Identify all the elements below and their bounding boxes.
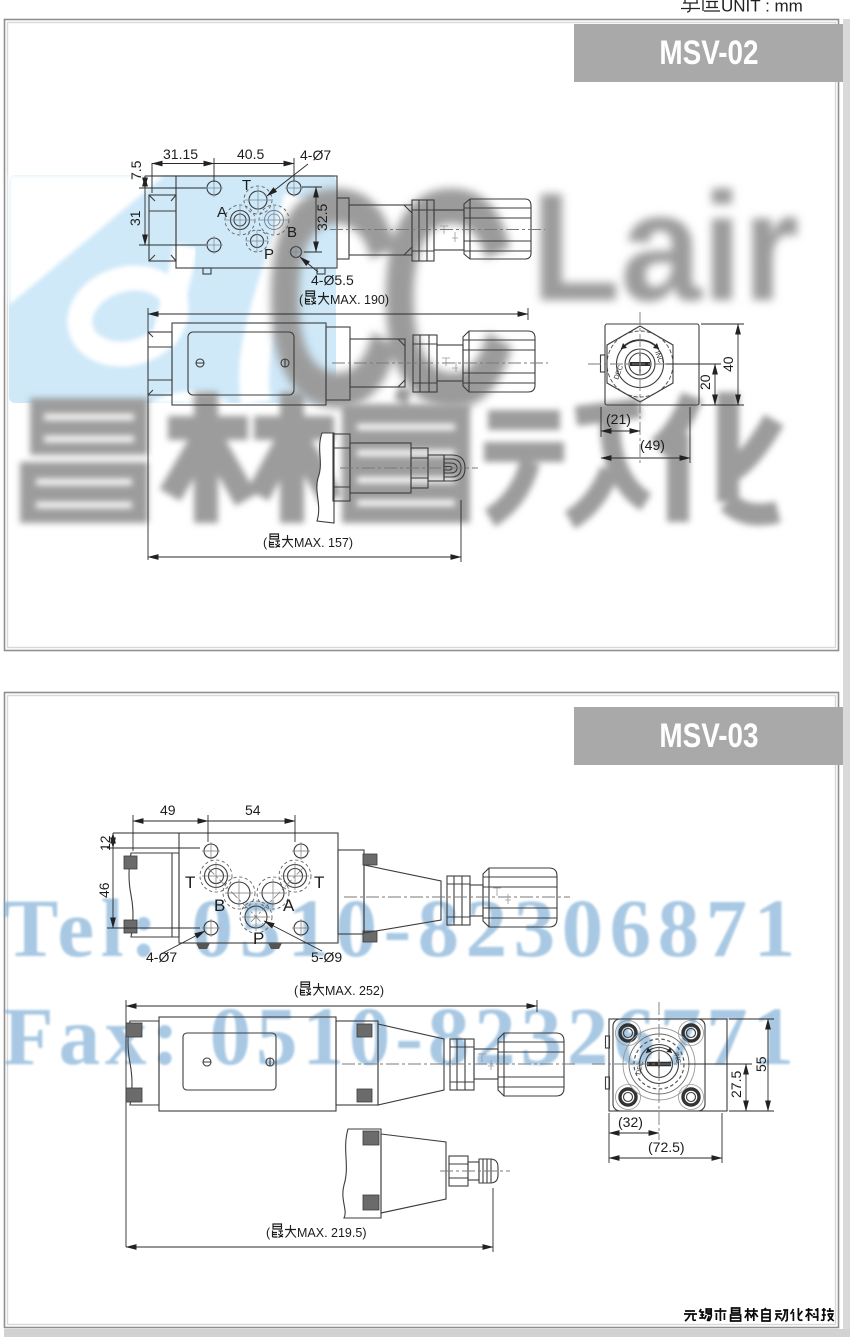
svg-text:A: A [217, 204, 227, 221]
svg-text:B: B [214, 896, 225, 915]
svg-text:(: ( [266, 1226, 271, 1240]
svg-text:MAX. 157): MAX. 157) [294, 536, 353, 550]
svg-text:4-Ø5.5: 4-Ø5.5 [311, 272, 354, 288]
svg-text:5-Ø9: 5-Ø9 [311, 949, 342, 965]
svg-text:DEC: DEC [613, 364, 625, 380]
svg-text:MAX. 219.5): MAX. 219.5) [297, 1226, 366, 1240]
svg-text:(72.5): (72.5) [648, 1139, 685, 1155]
svg-text:MSV-02: MSV-02 [659, 33, 758, 71]
svg-text:UNIT : mm: UNIT : mm [721, 0, 803, 16]
svg-text:31.15: 31.15 [163, 146, 198, 162]
svg-text:T: T [242, 177, 251, 194]
svg-text:46: 46 [96, 882, 112, 898]
svg-text:12: 12 [97, 835, 113, 851]
svg-text:55: 55 [753, 1056, 769, 1072]
svg-text:P: P [253, 929, 264, 948]
svg-text:(49): (49) [640, 437, 665, 453]
svg-text:MSV-03: MSV-03 [659, 716, 758, 754]
svg-text:(: ( [263, 536, 268, 550]
svg-text:A: A [283, 896, 295, 915]
svg-text:40.5: 40.5 [237, 146, 264, 162]
svg-text:54: 54 [245, 802, 261, 818]
svg-text:MAX. 252): MAX. 252) [325, 984, 384, 998]
svg-text:Fax: 0510-82326771: Fax: 0510-82326771 [3, 990, 799, 1082]
svg-text:4-Ø7: 4-Ø7 [146, 949, 177, 965]
svg-text:MAX. 190): MAX. 190) [330, 293, 389, 307]
svg-text:49: 49 [160, 802, 176, 818]
svg-text:Lair: Lair [531, 161, 799, 333]
svg-text:31: 31 [127, 210, 143, 226]
svg-text:B: B [287, 224, 297, 241]
svg-text:20: 20 [697, 374, 713, 390]
svg-text:4-Ø7: 4-Ø7 [300, 147, 331, 163]
svg-text:P: P [264, 246, 274, 263]
svg-text:T: T [185, 873, 195, 892]
svg-text:T: T [314, 873, 324, 892]
svg-text:7.5: 7.5 [128, 160, 144, 180]
svg-text:(21): (21) [606, 411, 631, 427]
svg-text:(32): (32) [618, 1114, 643, 1130]
svg-text:27.5: 27.5 [728, 1071, 744, 1098]
svg-text:40: 40 [720, 356, 736, 372]
